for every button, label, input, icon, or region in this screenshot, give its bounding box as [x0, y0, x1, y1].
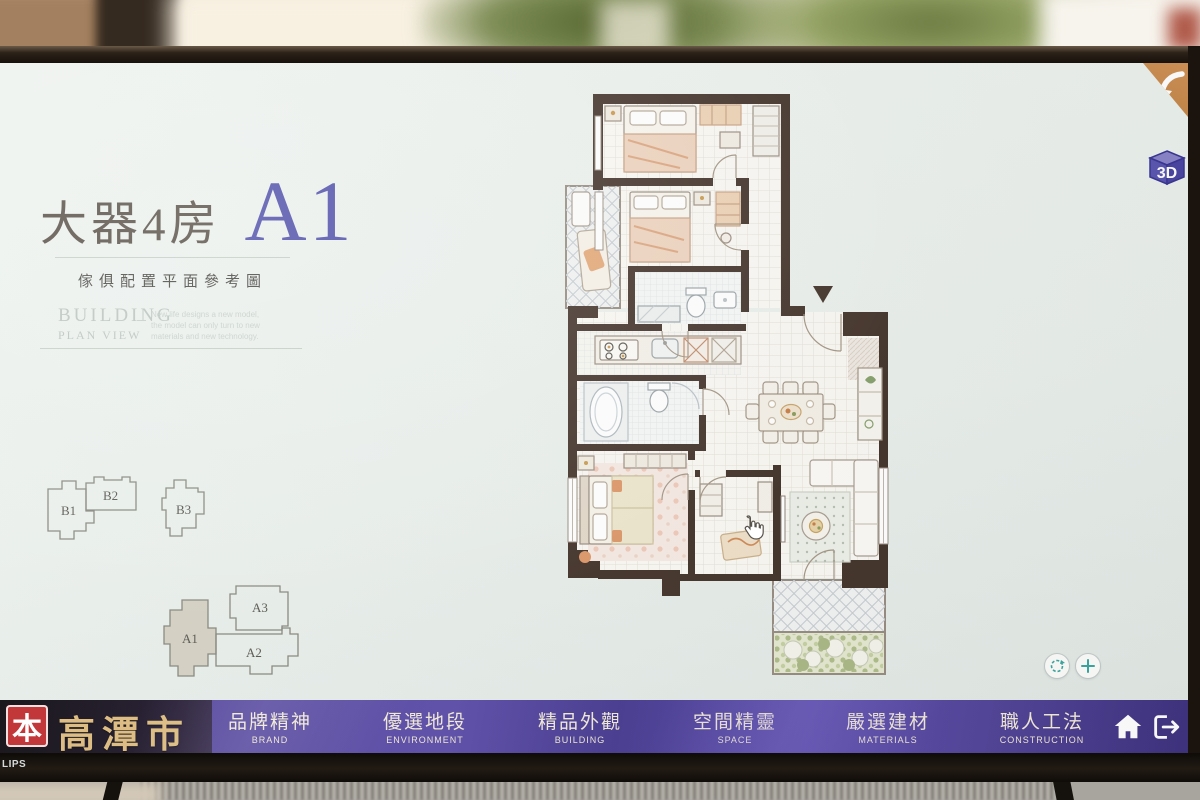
nav-label-en: BUILDING — [510, 735, 650, 745]
page-title: 大器4房 A1 — [40, 161, 354, 261]
back-arrow-icon — [1151, 66, 1187, 106]
exit-button[interactable] — [1150, 711, 1182, 743]
nav-label-en: MATERIALS — [818, 735, 958, 745]
room-background-bottom — [0, 780, 1200, 800]
unit-label-b1: B1 — [61, 503, 76, 518]
bottom-navbar: 本 高潭市 品牌精神 BRAND 優選地段 ENVIRONMENT 精品外觀 B… — [0, 700, 1188, 753]
logo-badge: 本 — [6, 705, 48, 747]
nav-item-materials[interactable]: 嚴選建材 MATERIALS — [818, 707, 958, 745]
hall-closet — [753, 106, 779, 156]
balcony-garden — [773, 580, 885, 674]
nav-item-brand[interactable]: 品牌精神 BRAND — [200, 707, 340, 745]
unit-label-b2: B2 — [103, 488, 118, 503]
rotate-button[interactable] — [1044, 653, 1070, 679]
nav-label-en: ENVIRONMENT — [355, 735, 495, 745]
back-button[interactable] — [1143, 63, 1188, 117]
divider — [40, 348, 302, 349]
project-logo: 本 高潭市 — [0, 700, 212, 753]
zoom-in-button[interactable] — [1075, 653, 1101, 679]
divider — [137, 320, 146, 321]
tv-stand-leg — [1052, 780, 1076, 800]
section-note-line: materials and new technology. — [151, 331, 306, 342]
floorplan[interactable] — [560, 80, 905, 695]
tv-bezel-top — [0, 46, 1200, 63]
divider — [55, 257, 290, 258]
unit-key-plan: B1 B2 B3 A1 A2 A3 — [40, 458, 310, 693]
tv-bezel-right — [1188, 46, 1200, 756]
nav-item-building[interactable]: 精品外觀 BUILDING — [510, 707, 650, 745]
plan-controls — [1044, 653, 1101, 679]
project-name: 高潭市 — [58, 704, 190, 753]
cube-3d-icon: 3D — [1146, 149, 1188, 187]
nav-label-en: BRAND — [200, 735, 340, 745]
section-note-line: New life designs a new model, — [151, 309, 306, 320]
unit-label-a1: A1 — [182, 631, 198, 646]
view-3d-label: 3D — [1157, 165, 1177, 182]
nav-label-en: SPACE — [665, 735, 805, 745]
nav-label-zh: 職人工法 — [972, 707, 1112, 734]
nav-label-zh: 嚴選建材 — [818, 707, 958, 734]
nav-item-construction[interactable]: 職人工法 CONSTRUCTION — [972, 707, 1112, 745]
red-object-blur — [1168, 8, 1200, 50]
kitchen — [595, 336, 741, 364]
nav-label-zh: 品牌精神 — [200, 707, 340, 734]
balcony-left — [566, 186, 620, 308]
kiosk-screen: 大器4房 A1 傢俱配置平面參考圖 BUILDING PLAN VIEW New… — [0, 63, 1188, 753]
nav-label-zh: 優選地段 — [355, 707, 495, 734]
nav-item-space[interactable]: 空間精靈 SPACE — [665, 707, 805, 745]
bedroom-master — [578, 454, 688, 563]
home-icon — [1112, 711, 1144, 743]
nav-label-zh: 精品外觀 — [510, 707, 650, 734]
plan-type-label: 大器4房 — [40, 185, 221, 254]
curtain-blur — [140, 780, 1060, 800]
section-note: New life designs a new model, the model … — [151, 309, 306, 342]
exit-icon — [1150, 711, 1182, 743]
nav-item-environment[interactable]: 優選地段 ENVIRONMENT — [355, 707, 495, 745]
unit-label-a3: A3 — [252, 600, 268, 615]
unit-code-label: A1 — [245, 161, 354, 261]
plan-subtitle: 傢俱配置平面參考圖 — [78, 270, 267, 291]
nav-label-en: CONSTRUCTION — [972, 735, 1112, 745]
nav-label-zh: 空間精靈 — [665, 707, 805, 734]
view-3d-button[interactable]: 3D — [1146, 149, 1188, 187]
table-blur — [0, 782, 160, 800]
home-button[interactable] — [1112, 711, 1144, 743]
unit-label-b3: B3 — [176, 502, 191, 517]
display-cabinet — [858, 368, 882, 440]
kiosk-photo: LIPS 大器4房 A1 傢俱配置平面參考圖 BUILDING PLAN VIE… — [0, 0, 1200, 800]
rotate-icon — [1049, 658, 1065, 674]
tv-bezel-bottom: LIPS — [0, 753, 1200, 782]
unit-label-a2: A2 — [246, 645, 262, 660]
plus-icon — [1081, 659, 1095, 673]
tv-panel — [781, 496, 785, 542]
section-note-line: the model can only turn to new — [151, 320, 306, 331]
entrance-marker — [813, 286, 833, 303]
tv-brand-logo: LIPS — [2, 759, 26, 770]
